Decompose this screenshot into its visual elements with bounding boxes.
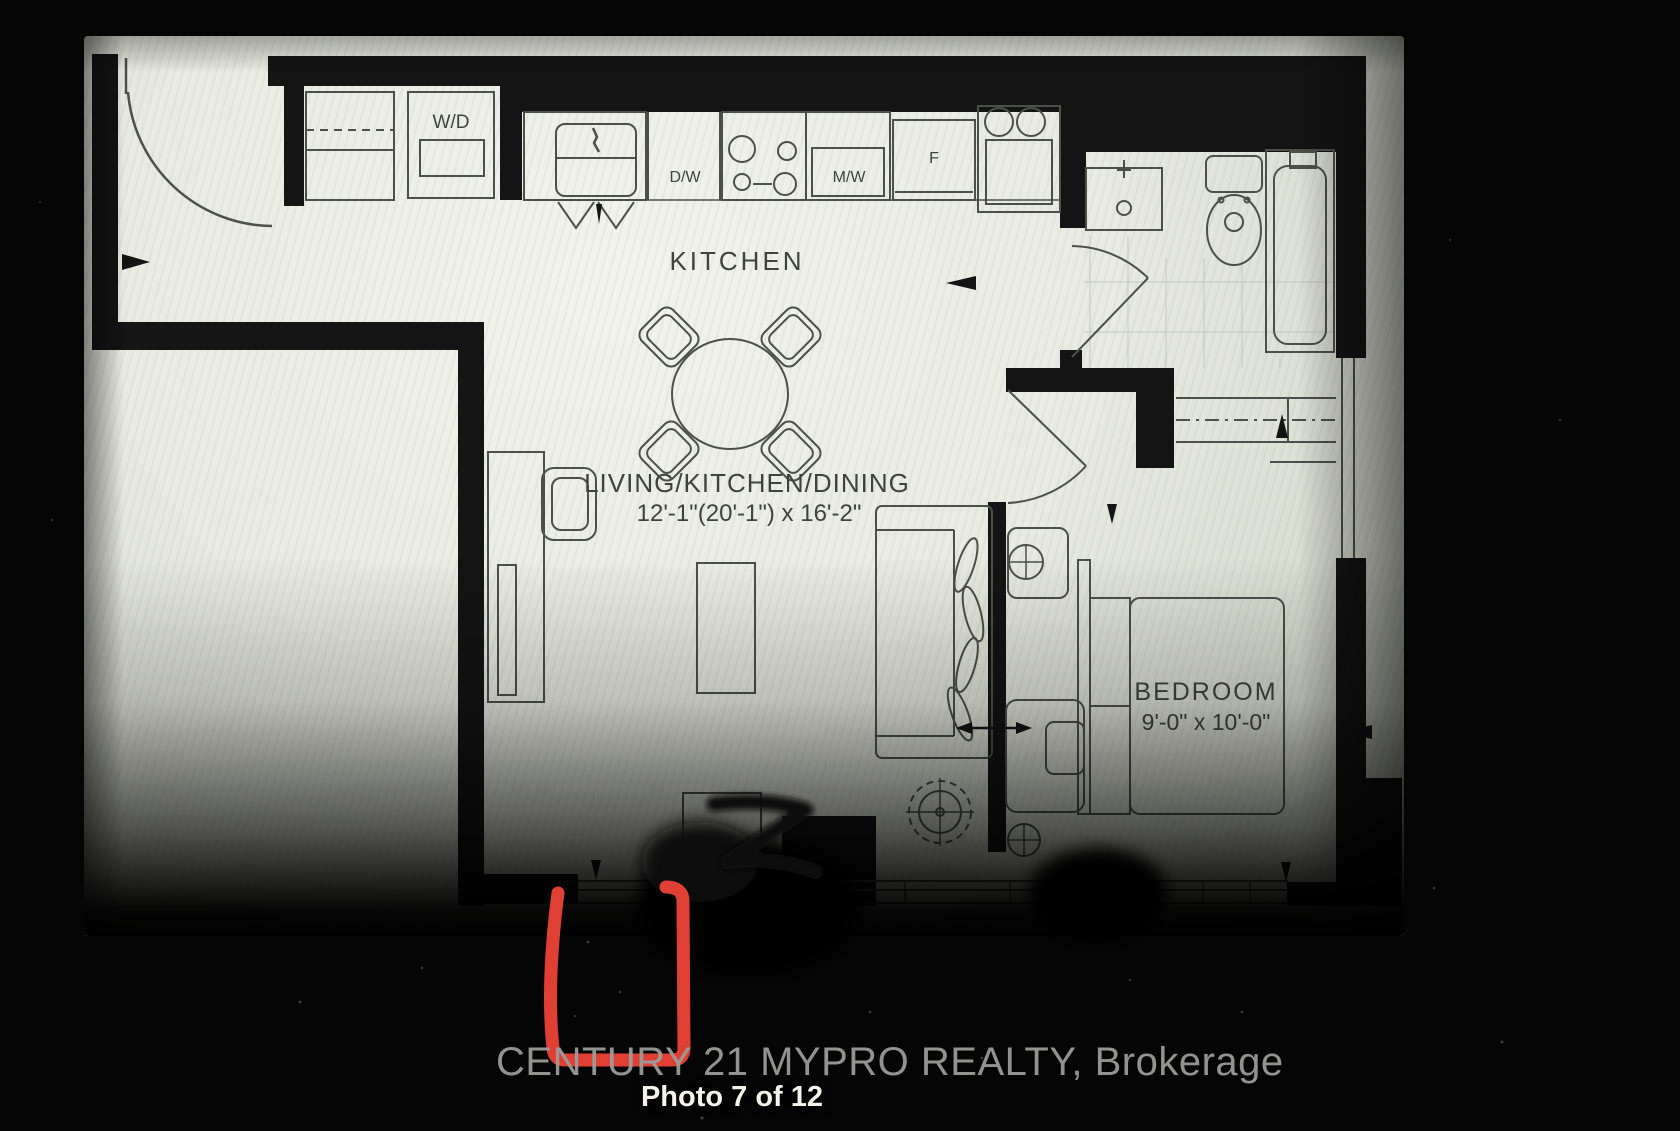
annotations-layer	[0, 0, 1680, 1131]
dust-speckles	[39, 201, 1561, 1120]
photo-caption: Photo 7 of 12	[632, 1081, 832, 1114]
brokerage-watermark: CENTURY 21 MYPRO REALTY, Brokerage	[496, 1040, 1196, 1085]
redaction-blob	[1028, 848, 1168, 940]
screenshot: KITCHEN LIVING/KITCHEN/DINING 12'-1"(20'…	[0, 0, 1680, 1131]
